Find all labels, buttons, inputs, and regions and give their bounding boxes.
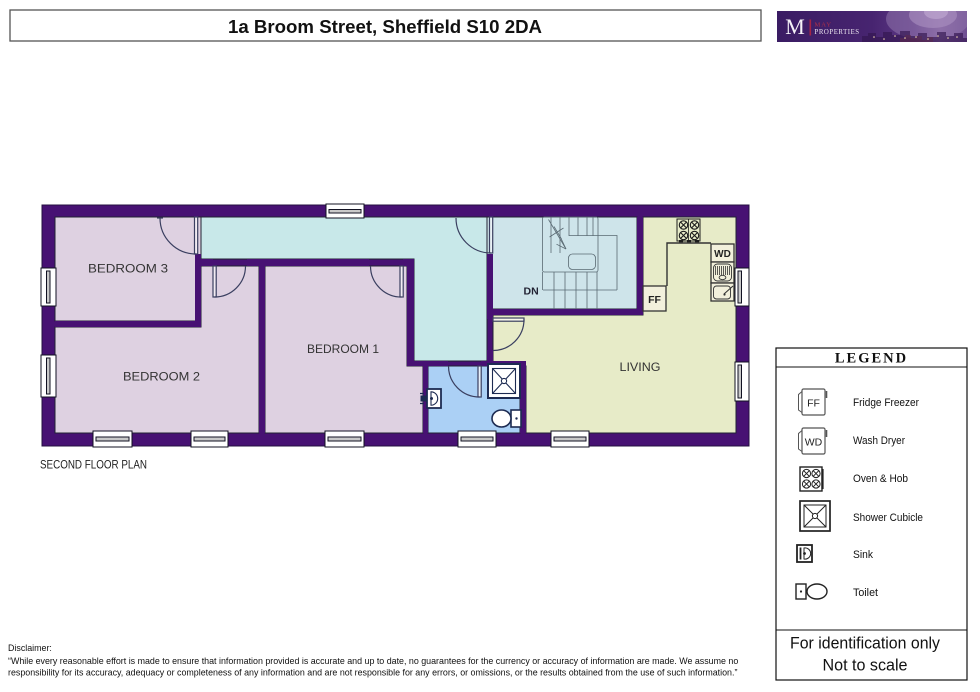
svg-text:BEDROOM 2: BEDROOM 2 — [123, 370, 200, 384]
svg-text:M: M — [785, 14, 805, 39]
svg-text:1a Broom Street, Sheffield S10: 1a Broom Street, Sheffield S10 2DA — [228, 17, 542, 37]
svg-text:FF: FF — [648, 294, 661, 306]
svg-text:Fridge Freezer: Fridge Freezer — [853, 397, 919, 409]
svg-text:PROPERTIES: PROPERTIES — [815, 29, 860, 36]
svg-text:WD: WD — [714, 249, 731, 260]
svg-text:Sink: Sink — [853, 549, 873, 561]
svg-text:LEGEND: LEGEND — [835, 351, 908, 367]
svg-text:Toilet: Toilet — [853, 587, 878, 599]
svg-text:LIVING: LIVING — [620, 360, 661, 374]
svg-text:For identification only: For identification only — [790, 635, 941, 653]
svg-text:MAY: MAY — [815, 22, 833, 29]
svg-text:Disclaimer:: Disclaimer: — [8, 643, 52, 653]
svg-text:SECOND FLOOR PLAN: SECOND FLOOR PLAN — [40, 460, 147, 472]
svg-text:WD: WD — [805, 437, 823, 449]
svg-text:BEDROOM 3: BEDROOM 3 — [88, 262, 168, 276]
svg-text:Shower Cubicle: Shower Cubicle — [853, 512, 923, 524]
svg-text:DN: DN — [524, 286, 539, 298]
svg-text:responsibility for its accurac: responsibility for its accuracy, adequac… — [8, 668, 737, 678]
svg-text:Not to scale: Not to scale — [823, 657, 908, 675]
svg-text:Oven & Hob: Oven & Hob — [853, 473, 908, 485]
svg-text:Wash Dryer: Wash Dryer — [853, 435, 905, 447]
svg-text:BEDROOM 1: BEDROOM 1 — [307, 342, 379, 356]
svg-text:“While every reasonable effort: “While every reasonable effort is made t… — [8, 656, 738, 666]
svg-text:FF: FF — [807, 398, 820, 410]
